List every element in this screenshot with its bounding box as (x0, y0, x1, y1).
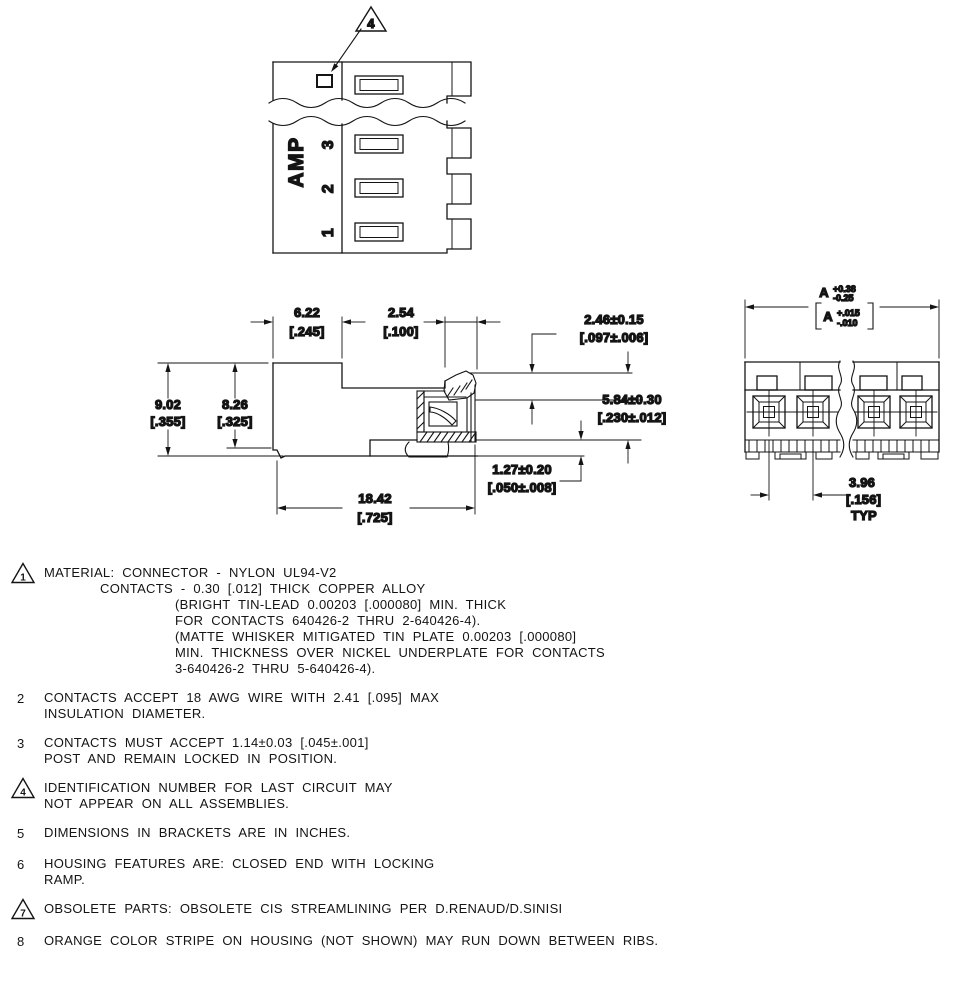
circuit-number-2: 2 (320, 183, 337, 193)
note-number: 3 (10, 736, 24, 752)
note-line: MATERIAL: CONNECTOR - NYLON UL94-V2 (44, 565, 750, 581)
dim-396-labels: 3.96 [.156] TYP (846, 475, 881, 523)
note-line: HOUSING FEATURES ARE: CLOSED END WITH LO… (44, 856, 750, 872)
note-3: 3 CONTACTS MUST ACCEPT 1.14±0.03 [.045±.… (10, 735, 750, 767)
note-7: 7 OBSOLETE PARTS: OBSOLETE CIS STREAMLIN… (10, 901, 750, 920)
note-line: RAMP. (44, 872, 750, 888)
bottom-ribs (745, 440, 939, 459)
dim-902: 9.02 (155, 397, 181, 412)
note-line: POST AND REMAIN LOCKED IN POSITION. (44, 751, 750, 767)
dim-1842: 18.42 (358, 491, 392, 506)
dim-902-in: [.355] (150, 414, 185, 429)
flag-triangle-icon: 4 (10, 777, 36, 799)
note-2: 2 CONTACTS ACCEPT 18 AWG WIRE WITH 2.41 … (10, 690, 750, 722)
flag-callout-number: 4 (367, 16, 375, 31)
dim-a-in-letter: A (823, 309, 833, 324)
dim-a-letter: A (819, 285, 829, 300)
note-7-flag: 7 (10, 901, 44, 920)
note-number: 2 (10, 691, 24, 707)
technical-drawing-views: AMP 3 2 1 4 (0, 0, 967, 545)
note-line: CONTACTS MUST ACCEPT 1.14±0.03 [.045±.00… (44, 735, 750, 751)
note-line: 3-640426-2 THRU 5-640426-4). (44, 661, 750, 677)
dim-254-in: [.100] (383, 324, 418, 339)
id-mark-square (317, 75, 332, 87)
svg-text:7: 7 (20, 909, 26, 920)
dim-584: 5.84±0.30 (602, 392, 662, 407)
dim-396-mm: 3.96 (849, 475, 875, 490)
note-line: ORANGE COLOR STRIPE ON HOUSING (NOT SHOW… (44, 933, 750, 949)
contact-openings (747, 391, 937, 436)
note-line: CONTACTS ACCEPT 18 AWG WIRE WITH 2.41 [.… (44, 690, 750, 706)
break-line-right (849, 361, 857, 457)
note-number: 5 (10, 826, 24, 842)
dim-a-labels: A +0.38 -0.25 A +.015 -.010 (819, 284, 860, 328)
note-line: NOT APPEAR ON ALL ASSEMBLIES. (44, 796, 750, 812)
svg-text:4: 4 (20, 788, 26, 799)
dimension-labels: 6.22 [.245] 2.54 [.100] 2.46±0.15 [.097±… (150, 305, 666, 525)
note-line: (BRIGHT TIN-LEAD 0.00203 [.000080] MIN. … (44, 597, 750, 613)
note-line: CONTACTS - 0.30 [.012] THICK COPPER ALLO… (44, 581, 750, 597)
dim-246: 2.46±0.15 (584, 312, 644, 327)
drawing-sheet: AMP 3 2 1 4 (0, 0, 967, 1000)
dim-127-in: [.050±.008] (488, 480, 557, 495)
note-number: 8 (10, 934, 24, 950)
contact-cross-section (405, 371, 476, 457)
circuit-number-1: 1 (320, 227, 337, 237)
note-line: IDENTIFICATION NUMBER FOR LAST CIRCUIT M… (44, 780, 750, 796)
brand-label: AMP (285, 136, 308, 187)
dim-396-typ: TYP (851, 508, 877, 523)
break-lines (269, 99, 465, 126)
dim-396-in: [.156] (846, 492, 881, 507)
note-line: (MATTE WHISKER MITIGATED TIN PLATE 0.002… (44, 629, 750, 645)
dim-622-in: [.245] (289, 324, 324, 339)
note-line: OBSOLETE PARTS: OBSOLETE CIS STREAMLININ… (44, 901, 750, 917)
dim-826: 8.26 (222, 397, 248, 412)
housing-ledge (370, 440, 417, 456)
dim-826-in: [.325] (217, 414, 252, 429)
contact-slots (355, 76, 403, 241)
flag-triangle-icon: 1 (10, 562, 36, 584)
svg-text:1: 1 (20, 573, 26, 584)
dim-a-in-plus: +.015 (837, 308, 860, 318)
notes-list: 1 MATERIAL: CONNECTOR - NYLON UL94-V2 CO… (10, 565, 750, 964)
flag-triangle-icon: 7 (10, 898, 36, 920)
dim-a-minus: -0.25 (833, 293, 854, 303)
note-4-flag: 4 (10, 780, 44, 799)
note-line: FOR CONTACTS 640426-2 THRU 2-640426-4). (44, 613, 750, 629)
dim-127: 1.27±0.20 (492, 462, 552, 477)
top-view-connector: AMP 3 2 1 4 (269, 7, 471, 253)
dim-1842-in: [.725] (357, 510, 392, 525)
note-1: 1 MATERIAL: CONNECTOR - NYLON UL94-V2 CO… (10, 565, 750, 677)
dim-246-in: [.097±.006] (580, 330, 649, 345)
dim-584-in: [.230±.012] (598, 410, 667, 425)
side-view-housing: 6.22 [.245] 2.54 [.100] 2.46±0.15 [.097±… (150, 305, 666, 525)
circuit-number-3: 3 (320, 139, 337, 149)
note-line: INSULATION DIAMETER. (44, 706, 750, 722)
dim-a-in-minus: -.010 (837, 318, 858, 328)
note-line: DIMENSIONS IN BRACKETS ARE IN INCHES. (44, 825, 750, 841)
note-line: MIN. THICKNESS OVER NICKEL UNDERPLATE FO… (44, 645, 750, 661)
note-number: 6 (10, 857, 24, 873)
dim-622: 6.22 (294, 305, 320, 320)
note-1-flag: 1 (10, 565, 44, 584)
end-view-connector: A +0.38 -0.25 A +.015 -.010 3.96 [.156] … (745, 284, 939, 523)
note-4: 4 IDENTIFICATION NUMBER FOR LAST CIRCUIT… (10, 780, 750, 812)
note-5: 5 DIMENSIONS IN BRACKETS ARE IN INCHES. (10, 825, 750, 843)
note-8: 8 ORANGE COLOR STRIPE ON HOUSING (NOT SH… (10, 933, 750, 951)
note-6: 6 HOUSING FEATURES ARE: CLOSED END WITH … (10, 856, 750, 888)
leader-arrowhead (331, 63, 338, 72)
dim-254: 2.54 (388, 305, 415, 320)
